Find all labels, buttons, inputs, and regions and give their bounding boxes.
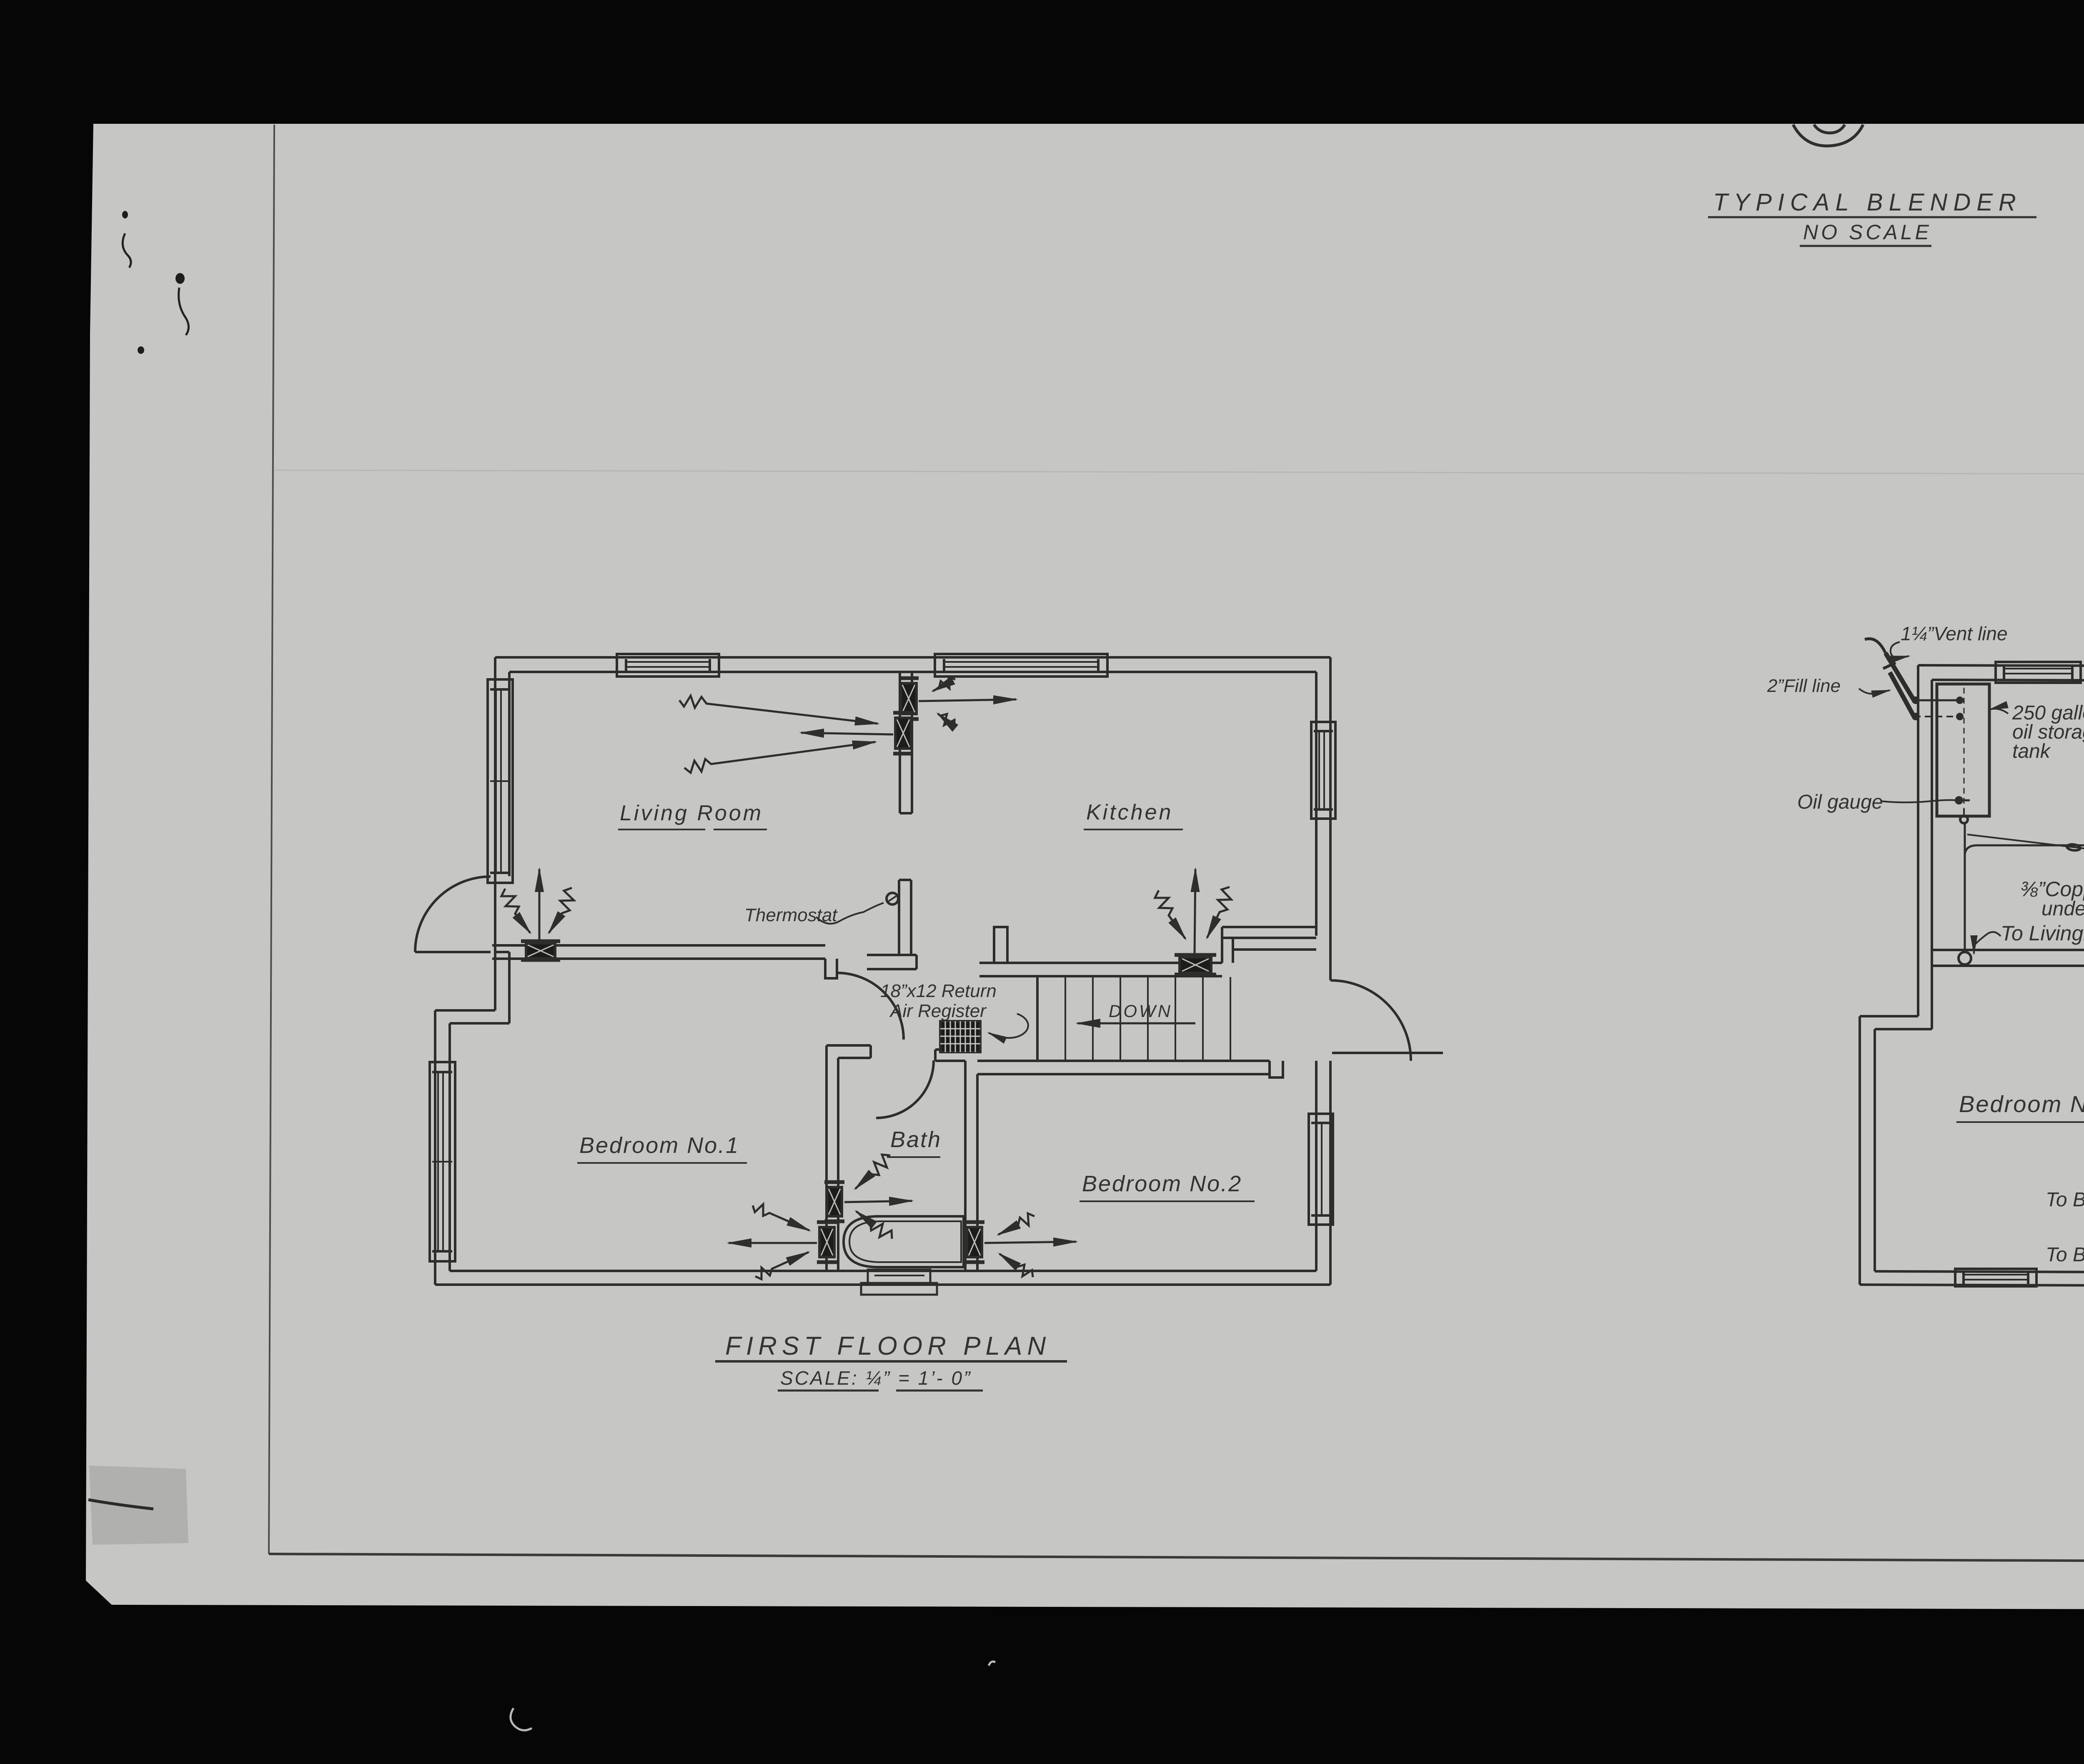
svg-text:Thermostat: Thermostat (744, 905, 838, 925)
svg-text:Bedroom No.3: Bedroom No.3 (1959, 1091, 2084, 1117)
svg-text:18”x12 Return: 18”x12 Return (880, 981, 997, 1001)
svg-text:Bedroom No.2: Bedroom No.2 (1082, 1171, 1242, 1196)
svg-text:Living Room: Living Room (620, 801, 763, 825)
svg-text:Kitchen: Kitchen (1086, 800, 1173, 824)
svg-text:Oil gauge: Oil gauge (1797, 791, 1883, 813)
svg-text:Bath: Bath (890, 1127, 942, 1152)
svg-text:2”Fill line: 2”Fill line (1767, 676, 1841, 696)
svg-text:NO SCALE: NO SCALE (1803, 220, 1932, 244)
svg-text:DOWN: DOWN (1109, 1001, 1172, 1021)
svg-text:Air Register: Air Register (889, 1001, 987, 1021)
svg-text:To Bedroom No.3: To Bedroom No.3 (2046, 1189, 2084, 1211)
svg-text:Bedroom No.1: Bedroom No.1 (579, 1133, 739, 1158)
svg-text:FIRST FLOOR PLAN: FIRST FLOOR PLAN (725, 1332, 1051, 1361)
svg-text:under concrete slab: under concrete slab (2041, 898, 2084, 920)
svg-text:To Livingroom: To Livingroom (2001, 922, 2084, 945)
svg-text:TYPICAL BLENDER: TYPICAL BLENDER (1713, 189, 2022, 216)
svg-text:SCALE: ¼” = 1’- 0”: SCALE: ¼” = 1’- 0” (780, 1367, 972, 1389)
svg-text:To Bedroom No.1: To Bedroom No.1 (2046, 1244, 2084, 1266)
svg-text:tank: tank (2012, 740, 2051, 762)
svg-text:1¼”Vent line: 1¼”Vent line (1901, 623, 2008, 644)
svg-text:⅜”Copper tube oil line: ⅜”Copper tube oil line (2021, 877, 2084, 901)
